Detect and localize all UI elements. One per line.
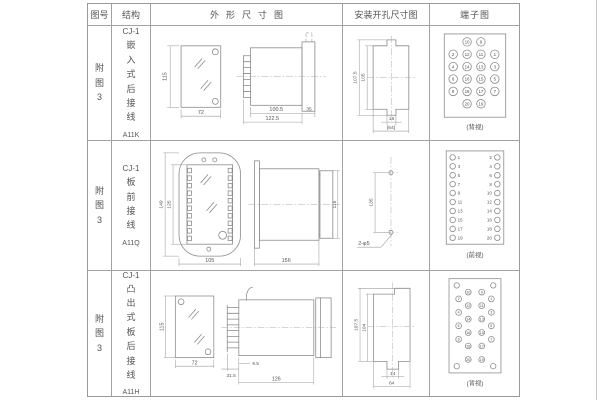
svg-text:20: 20 xyxy=(465,102,470,107)
svg-text:18: 18 xyxy=(466,344,470,348)
dim-9-5: 9.5 xyxy=(252,361,259,367)
svg-text:11: 11 xyxy=(458,200,463,205)
row2-terminal-strip-left xyxy=(187,168,191,240)
row3-struct-text: 凸出式板后接线 xyxy=(125,282,137,383)
row2-struct-text: 板前接线 xyxy=(125,175,137,233)
dim-115f: 115 xyxy=(159,323,165,331)
dim-64: [64] xyxy=(387,125,396,131)
svg-text:10: 10 xyxy=(465,40,470,45)
row2-fig: 附图3 xyxy=(88,141,112,271)
svg-text:10: 10 xyxy=(466,291,470,295)
row1-side-view: 100.5 35 122.5 xyxy=(237,33,326,124)
svg-text:13: 13 xyxy=(478,64,483,69)
row3-front-view: 115 72 xyxy=(159,296,213,368)
row2-code: A11Q xyxy=(122,240,139,247)
header-outline: 外形尺寸图 xyxy=(151,4,343,26)
svg-text:2: 2 xyxy=(489,155,492,160)
svg-text:16: 16 xyxy=(487,217,492,222)
header-outline-label: 外形尺寸图 xyxy=(203,8,290,21)
svg-text:12: 12 xyxy=(465,52,470,57)
dim-31-5: 31.5 xyxy=(226,373,236,379)
row2-terminal-grid: 1 2 3 4 5 6 7 8 9 10 11 12 13 14 15 16 1… xyxy=(450,155,500,241)
dim-16: 16 xyxy=(389,116,395,122)
dim-126: 126 xyxy=(272,377,281,383)
svg-text:18: 18 xyxy=(465,89,470,94)
svg-text:17: 17 xyxy=(458,226,463,231)
row1-outline-svg: 115 72 100.5 35 122.5 xyxy=(151,26,342,140)
dim-64b: 64 xyxy=(389,380,395,386)
label-2-phi5: 2-φ5 xyxy=(358,241,369,247)
dim-14: 14 xyxy=(390,371,396,377)
row1-code: A11K xyxy=(123,132,140,139)
row2-outline-svg: 149 125 105 156 115 xyxy=(151,141,342,270)
row2-terminal-strip-right xyxy=(228,168,232,240)
row3-fig-text: 附图3 xyxy=(94,312,106,355)
svg-text:19: 19 xyxy=(458,235,463,240)
spec-table: 图号 结构 外形尺寸图 安装开孔尺寸图 端子图 附图3 CJ-1 嵌入式后接线 … xyxy=(87,3,520,397)
svg-text:16: 16 xyxy=(466,331,470,335)
row2-mount-svg: 135 2-φ5 xyxy=(343,141,429,270)
svg-text:13: 13 xyxy=(480,317,484,321)
svg-text:2: 2 xyxy=(458,297,460,301)
svg-text:17: 17 xyxy=(480,344,484,348)
row1-terminal-caption: (背视) xyxy=(466,122,483,131)
row1-terminal-diagram: 10 9 2 12 11 1 4 14 13 3 6 16 15 5 8 18 … xyxy=(430,26,519,141)
row3-outline-drawing: 115 72 31.5 9.5 126 xyxy=(151,271,343,396)
header-fig: 图号 xyxy=(88,4,112,26)
row1-struct: CJ-1 嵌入式后接线 A11K xyxy=(112,26,151,141)
svg-text:13: 13 xyxy=(458,209,463,214)
row2-terminal-svg: 1 2 3 4 5 6 7 8 9 10 11 12 13 14 15 16 1… xyxy=(430,141,519,270)
header-terminal-label: 端子图 xyxy=(459,8,490,21)
svg-text:4: 4 xyxy=(458,311,460,315)
dim-104: 104 xyxy=(361,323,367,331)
row3-terminal-svg: 10 12 14 16 18 20 2 4 6 8 9 11 13 15 17 … xyxy=(430,271,519,396)
svg-text:1: 1 xyxy=(490,297,492,301)
row3-terminal-grid: 10 12 14 16 18 20 2 4 6 8 9 11 13 15 17 … xyxy=(456,289,494,362)
header-struct-label: 结构 xyxy=(122,8,140,21)
dim-107-5: 107.5 xyxy=(352,71,358,84)
svg-text:7: 7 xyxy=(458,182,461,187)
svg-text:16: 16 xyxy=(465,77,470,82)
header-struct: 结构 xyxy=(112,4,151,26)
svg-text:11: 11 xyxy=(479,52,484,57)
dim-125: 125 xyxy=(167,200,173,209)
row2-side-view: 156 115 xyxy=(248,161,339,266)
row2-model: CJ-1 xyxy=(123,164,140,173)
row2-terminal-diagram: 1 2 3 4 5 6 7 8 9 10 11 12 13 14 15 16 1… xyxy=(430,141,519,271)
row3-fig: 附图3 xyxy=(88,271,112,396)
svg-text:18: 18 xyxy=(487,226,492,231)
svg-text:8: 8 xyxy=(458,338,460,342)
dim-105: 105 xyxy=(361,73,367,81)
dim-115: 115 xyxy=(163,72,169,81)
row1-terminal-svg: 10 9 2 12 11 1 4 14 13 3 6 16 15 5 8 18 … xyxy=(430,26,519,140)
svg-text:15: 15 xyxy=(458,217,463,222)
svg-text:3: 3 xyxy=(490,311,492,315)
svg-text:15: 15 xyxy=(480,331,484,335)
svg-text:8: 8 xyxy=(489,182,492,187)
svg-text:5: 5 xyxy=(458,173,461,178)
row2-front-view: 149 125 105 xyxy=(159,153,241,266)
row1-fig-text: 附图3 xyxy=(94,61,106,104)
svg-text:11: 11 xyxy=(480,304,484,308)
row3-terminal-diagram: 10 12 14 16 18 20 2 4 6 8 9 11 13 15 17 … xyxy=(430,271,519,396)
row2-mount-drawing: 135 2-φ5 xyxy=(343,141,430,271)
row1-fig: 附图3 xyxy=(88,26,112,141)
header-terminal: 端子图 xyxy=(430,4,519,26)
svg-text:6: 6 xyxy=(489,173,492,178)
row3-struct: CJ-1 凸出式板后接线 A11H xyxy=(112,271,151,396)
row1-mount-svg: 107.5 105 16 [64] xyxy=(343,26,429,140)
row1-mount-drawing: 107.5 105 16 [64] xyxy=(343,26,430,141)
dim-105w: 105 xyxy=(205,258,214,264)
svg-text:5: 5 xyxy=(490,324,492,328)
row3-mount-drawing: 107.5 104 14 64 xyxy=(343,271,430,396)
row1-model: CJ-1 xyxy=(123,27,140,36)
svg-text:14: 14 xyxy=(465,64,470,69)
row3-terminal-caption: (背视) xyxy=(467,378,484,387)
dim-72: 72 xyxy=(198,110,204,116)
dim-135: 135 xyxy=(369,198,375,207)
dim-107-5b: 107.5 xyxy=(354,319,360,331)
row1-terminal-grid: 10 9 2 12 11 1 4 14 13 3 6 16 15 5 8 18 … xyxy=(449,38,499,108)
svg-text:20: 20 xyxy=(487,235,492,240)
row3-side-view: 31.5 9.5 126 xyxy=(222,287,336,384)
svg-text:19: 19 xyxy=(480,358,484,362)
svg-text:3: 3 xyxy=(458,164,461,169)
svg-text:7: 7 xyxy=(490,338,492,342)
svg-text:12: 12 xyxy=(487,200,492,205)
svg-text:9: 9 xyxy=(481,291,483,295)
row2-terminal-caption: (前视) xyxy=(466,250,483,259)
dim-100-5: 100.5 xyxy=(269,107,283,113)
svg-text:15: 15 xyxy=(478,77,483,82)
row3-model: CJ-1 xyxy=(123,271,140,280)
row3-outline-svg: 115 72 31.5 9.5 126 xyxy=(151,271,342,396)
dim-35: 35 xyxy=(306,107,312,113)
dim-156: 156 xyxy=(282,258,291,264)
svg-text:14: 14 xyxy=(466,317,470,321)
svg-text:20: 20 xyxy=(466,358,470,362)
dim-115s: 115 xyxy=(332,200,338,208)
dim-122-5: 122.5 xyxy=(265,116,279,122)
dim-149: 149 xyxy=(159,200,165,209)
svg-text:4: 4 xyxy=(489,164,492,169)
svg-text:6: 6 xyxy=(458,324,460,328)
row1-outline-drawing: 115 72 100.5 35 122.5 xyxy=(151,26,343,141)
svg-text:19: 19 xyxy=(478,102,483,107)
row1-struct-text: 嵌入式后接线 xyxy=(125,38,137,124)
header-mount: 安装开孔尺寸图 xyxy=(343,4,430,26)
svg-text:10: 10 xyxy=(487,191,492,196)
svg-text:14: 14 xyxy=(487,209,492,214)
page-scan-edge xyxy=(596,0,597,400)
row3-code: A11H xyxy=(123,389,140,396)
row1-front-view: 115 72 xyxy=(163,46,221,118)
svg-text:17: 17 xyxy=(478,89,483,94)
dim-72f: 72 xyxy=(192,360,198,366)
row2-outline-drawing: 149 125 105 156 115 xyxy=(151,141,343,271)
svg-text:9: 9 xyxy=(458,191,461,196)
header-fig-label: 图号 xyxy=(90,8,108,21)
row2-fig-text: 附图3 xyxy=(94,184,106,227)
svg-text:1: 1 xyxy=(458,155,461,160)
svg-text:12: 12 xyxy=(466,304,470,308)
row3-mount-svg: 107.5 104 14 64 xyxy=(343,271,429,396)
row2-struct: CJ-1 板前接线 A11Q xyxy=(112,141,151,271)
header-mount-label: 安装开孔尺寸图 xyxy=(354,8,417,21)
